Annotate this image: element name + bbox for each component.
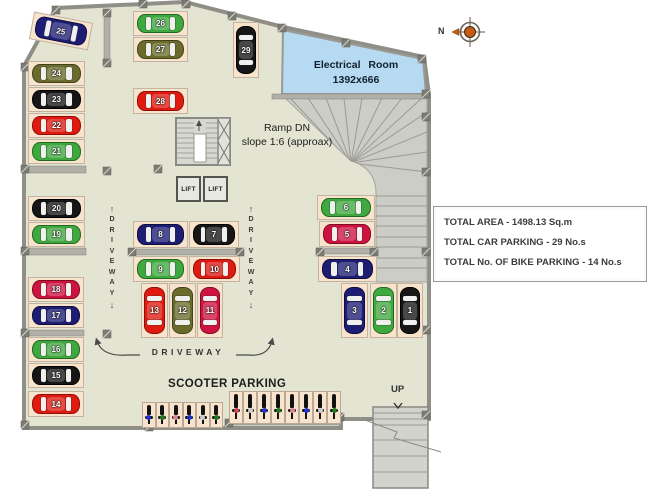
scooter-hub-dot <box>332 408 337 413</box>
parking-stall-6: 6 <box>317 195 375 220</box>
scooter-stall <box>169 402 183 428</box>
car-10: 10 <box>193 259 236 279</box>
scooter-icon <box>318 394 322 408</box>
car-4: 4 <box>322 259 373 279</box>
scooter-stall <box>196 402 210 428</box>
car-15: 15 <box>32 366 80 385</box>
car-22: 22 <box>32 116 81 135</box>
parking-stall-20: 20 <box>28 196 85 221</box>
scooter-stall <box>243 391 257 424</box>
scooter-icon <box>147 405 151 416</box>
scooter-hub-dot <box>160 415 165 420</box>
car-3: 3 <box>344 287 365 334</box>
total-car-parking-text: TOTAL CAR PARKING - 29 No.s <box>444 237 636 248</box>
scooter-hub-dot <box>318 408 323 413</box>
totals-info-panel: TOTAL AREA - 1498.13 Sq.m TOTAL CAR PARK… <box>433 206 647 282</box>
parking-stall-2: 2 <box>370 283 397 338</box>
scooter-hub-dot <box>276 408 281 413</box>
parking-stall-26: 26 <box>133 11 188 36</box>
scooter-hub-dot <box>248 408 253 413</box>
scooter-icon <box>160 405 164 416</box>
car-8: 8 <box>137 224 184 245</box>
car-16: 16 <box>32 340 80 359</box>
parking-stall-29: 29 <box>233 22 259 78</box>
parking-stall-24: 24 <box>28 61 85 86</box>
car-number: 25 <box>56 26 66 37</box>
car-12: 12 <box>172 287 193 334</box>
car-number: 21 <box>52 147 61 156</box>
parking-stall-3: 3 <box>341 283 368 338</box>
car-number: 5 <box>345 230 349 239</box>
scooter-stall <box>299 391 313 424</box>
car-number: 18 <box>52 285 61 294</box>
parking-stall-18: 18 <box>28 277 84 302</box>
scooter-stall <box>257 391 271 424</box>
car-25: 25 <box>33 15 88 47</box>
scooter-hub-dot <box>290 408 295 413</box>
car-23: 23 <box>32 90 81 109</box>
car-29: 29 <box>236 26 256 74</box>
car-11: 11 <box>200 287 220 334</box>
parking-stall-10: 10 <box>189 256 240 282</box>
parking-stall-1: 1 <box>397 283 423 338</box>
parking-stall-4: 4 <box>318 256 377 282</box>
car-number: 10 <box>210 265 219 274</box>
scooter-icon <box>248 394 252 408</box>
parking-stall-11: 11 <box>197 283 223 338</box>
car-20: 20 <box>32 199 81 218</box>
car-number: 2 <box>381 306 385 315</box>
car-number: 16 <box>52 345 61 354</box>
parking-stall-16: 16 <box>28 337 84 362</box>
car-13: 13 <box>144 287 165 334</box>
car-number: 28 <box>156 97 165 106</box>
car-number: 1 <box>408 306 412 315</box>
parking-stall-15: 15 <box>28 363 84 388</box>
scooter-hub-dot <box>234 408 239 413</box>
parking-stall-25: 25 <box>29 12 93 51</box>
scooter-hub-dot <box>173 415 178 420</box>
scooter-icon <box>304 394 308 408</box>
car-number: 19 <box>52 230 61 239</box>
scooter-icon <box>174 405 178 416</box>
parking-floor-plan: 2524232221201918171615142627282987910131… <box>0 0 650 500</box>
car-18: 18 <box>32 280 80 299</box>
scooter-hub-dot <box>187 415 192 420</box>
scooter-stall <box>183 402 197 428</box>
car-21: 21 <box>32 142 81 161</box>
parking-stall-22: 22 <box>28 113 85 138</box>
car-number: 7 <box>212 230 216 239</box>
scooter-icon <box>201 405 205 416</box>
parking-stall-28: 28 <box>133 88 188 114</box>
parking-stall-5: 5 <box>319 221 375 247</box>
car-number: 26 <box>156 19 165 28</box>
scooter-icon <box>290 394 294 408</box>
car-number: 14 <box>52 400 61 409</box>
scooter-stall <box>327 391 341 424</box>
car-number: 24 <box>52 69 61 78</box>
scooter-stall <box>271 391 285 424</box>
car-26: 26 <box>137 14 184 33</box>
car-number: 13 <box>150 306 159 315</box>
car-number: 23 <box>52 95 61 104</box>
car-number: 4 <box>345 265 349 274</box>
parking-stall-12: 12 <box>169 283 196 338</box>
scooter-stall <box>313 391 327 424</box>
car-28: 28 <box>137 91 184 111</box>
car-number: 20 <box>52 204 61 213</box>
car-24: 24 <box>32 64 81 83</box>
scooter-icon <box>276 394 280 408</box>
scooter-stall <box>285 391 299 424</box>
car-number: 22 <box>52 121 61 130</box>
parking-stall-17: 17 <box>28 303 84 328</box>
car-number: 8 <box>158 230 162 239</box>
car-number: 12 <box>178 306 187 315</box>
scooter-hub-dot <box>304 408 309 413</box>
car-number: 11 <box>206 306 214 315</box>
car-5: 5 <box>323 224 371 244</box>
total-area-text: TOTAL AREA - 1498.13 Sq.m <box>444 217 636 228</box>
car-9: 9 <box>137 259 184 279</box>
scooter-hub-dot <box>262 408 267 413</box>
car-27: 27 <box>137 40 184 59</box>
parking-stall-13: 13 <box>141 283 168 338</box>
scooter-icon <box>262 394 266 408</box>
scooter-icon <box>214 405 218 416</box>
car-number: 6 <box>344 203 348 212</box>
parking-stall-9: 9 <box>133 256 188 282</box>
total-bike-parking-text: TOTAL No. OF BIKE PARKING - 14 No.s <box>444 257 636 268</box>
car-14: 14 <box>32 394 80 414</box>
car-number: 3 <box>352 306 356 315</box>
car-6: 6 <box>321 198 371 217</box>
car-number: 29 <box>242 46 251 55</box>
scooter-hub-dot <box>214 415 219 420</box>
parking-stall-7: 7 <box>189 221 239 248</box>
parking-stall-19: 19 <box>28 222 85 247</box>
car-number: 9 <box>158 265 162 274</box>
car-1: 1 <box>400 287 420 334</box>
car-17: 17 <box>32 306 80 325</box>
scooter-stall <box>142 402 156 428</box>
parking-stall-21: 21 <box>28 139 85 164</box>
car-7: 7 <box>193 224 235 245</box>
scooter-stall <box>229 391 243 424</box>
parking-stall-14: 14 <box>28 391 84 417</box>
parking-stall-27: 27 <box>133 37 188 62</box>
scooter-stall <box>156 402 170 428</box>
car-number: 17 <box>52 311 61 320</box>
scooter-stall <box>210 402 224 428</box>
scooter-hub-dot <box>200 415 205 420</box>
scooter-icon <box>234 394 238 408</box>
parking-stall-8: 8 <box>133 221 188 248</box>
scooter-icon <box>332 394 336 408</box>
parking-stall-23: 23 <box>28 87 85 112</box>
car-2: 2 <box>373 287 394 334</box>
car-19: 19 <box>32 225 81 244</box>
scooter-hub-dot <box>146 415 151 420</box>
scooter-icon <box>187 405 191 416</box>
car-number: 27 <box>156 45 165 54</box>
car-number: 15 <box>52 371 61 380</box>
